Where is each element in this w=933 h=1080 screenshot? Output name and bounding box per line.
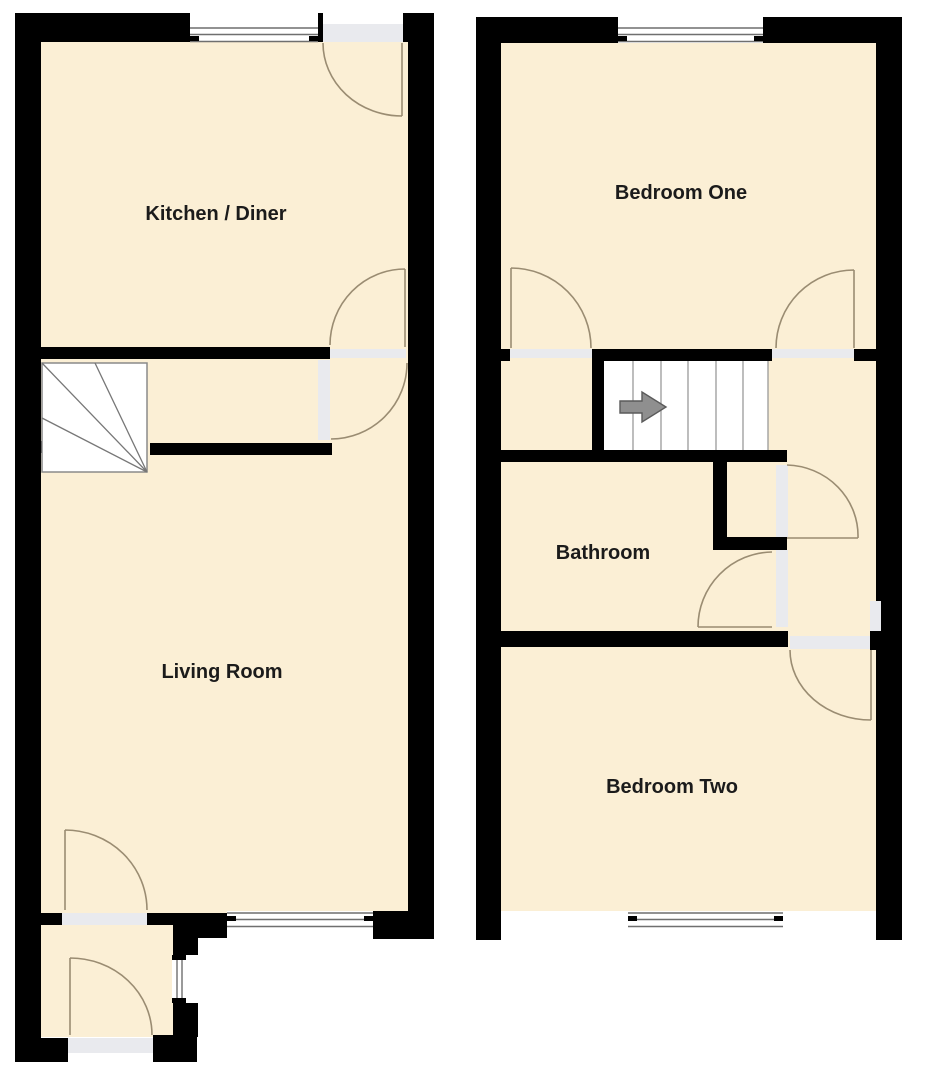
window-opening: [227, 911, 373, 939]
door-leaf-panel: [318, 360, 330, 440]
porch-window: [172, 955, 186, 1003]
window-frame-nub: [754, 36, 763, 41]
wall: [15, 13, 190, 42]
floorplan-canvas: Kitchen / Diner Living Room: [0, 0, 933, 1080]
door-threshold: [330, 349, 406, 358]
stairs-ground: [42, 363, 147, 472]
wall: [854, 349, 876, 361]
stairs-first: [604, 361, 768, 450]
wall: [15, 13, 41, 1062]
door-threshold: [62, 913, 147, 925]
door-threshold: [790, 636, 870, 649]
door-threshold: [870, 601, 881, 631]
room-label-bedroom-two: Bedroom Two: [606, 776, 738, 798]
bedroom-two-window: [628, 911, 783, 940]
wall: [727, 537, 787, 550]
wall: [15, 1038, 68, 1062]
room-label-bathroom: Bathroom: [556, 542, 650, 564]
kitchen-window: [190, 13, 318, 42]
window-frame-nub: [309, 36, 318, 41]
wall: [173, 925, 227, 938]
wall: [41, 347, 330, 359]
wall: [318, 13, 323, 42]
porch-floor-area: [41, 925, 173, 1037]
wall: [41, 913, 62, 925]
first-floor-plan: Bedroom One Bathroom Bedroom Two: [476, 17, 902, 940]
window-frame-nub: [774, 916, 783, 921]
window-opening: [172, 955, 186, 1003]
window-opening: [618, 17, 763, 43]
window-frame-nub: [618, 36, 627, 41]
wall: [150, 443, 332, 455]
wall: [501, 450, 787, 462]
ground-floor-plan: Kitchen / Diner Living Room: [15, 13, 434, 1062]
ground-floor-area: [41, 40, 408, 913]
window-frame-nub: [227, 916, 236, 921]
door-threshold: [68, 1038, 153, 1053]
wall: [501, 349, 510, 361]
window-opening: [628, 911, 783, 940]
wall: [173, 1003, 198, 1037]
wall: [408, 13, 434, 939]
wall: [592, 349, 604, 462]
door-threshold: [323, 24, 403, 42]
window-frame-nub: [628, 916, 637, 921]
wall: [173, 938, 198, 955]
room-label-kitchen-diner: Kitchen / Diner: [145, 203, 286, 225]
wall: [147, 913, 227, 925]
wall: [501, 631, 788, 647]
window-frame-nub: [172, 998, 186, 1003]
window-frame-nub: [364, 916, 373, 921]
window-frame-nub: [172, 955, 186, 960]
wall: [713, 462, 727, 550]
door-threshold: [776, 465, 788, 537]
wall: [870, 631, 882, 650]
window-frame-nub: [190, 36, 199, 41]
door-threshold: [772, 349, 854, 358]
wall: [592, 349, 772, 361]
door-threshold: [510, 349, 592, 358]
wall: [476, 17, 501, 940]
room-label-bedroom-one: Bedroom One: [615, 182, 747, 204]
wall: [876, 17, 902, 940]
room-label-living-room: Living Room: [161, 661, 282, 683]
door-threshold: [776, 550, 788, 627]
wall: [373, 911, 434, 939]
wall: [153, 1035, 197, 1062]
living-room-window: [227, 911, 373, 939]
floorplan-svg: Kitchen / Diner Living Room: [0, 0, 933, 1080]
bedroom-one-window: [618, 17, 763, 43]
